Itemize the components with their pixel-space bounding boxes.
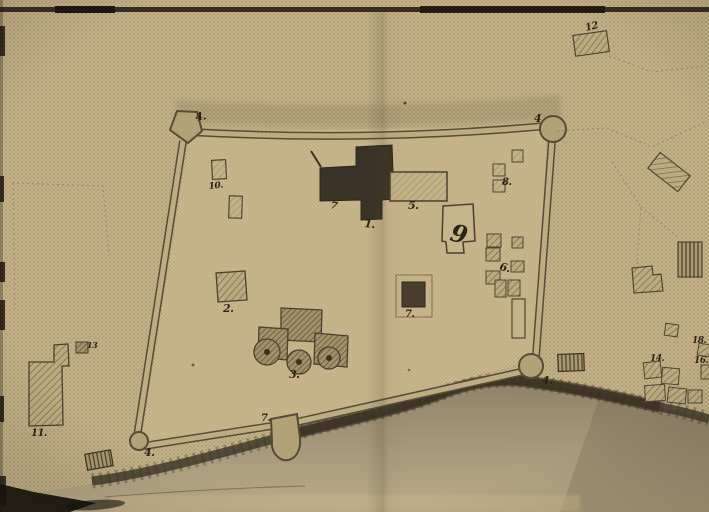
building-6-unit xyxy=(486,248,500,261)
building-long-narrow xyxy=(512,299,525,338)
left-edge-strip xyxy=(0,0,3,512)
village-house xyxy=(661,367,679,384)
village-house xyxy=(701,365,709,379)
village-house xyxy=(664,323,679,337)
church-tower-middle-core xyxy=(296,359,302,365)
left-edge-mark xyxy=(0,176,4,202)
left-edge-mark xyxy=(0,26,5,56)
top-rule-blob-right xyxy=(420,6,605,13)
left-edge-mark xyxy=(0,300,5,330)
building-10-a xyxy=(212,160,227,180)
building-11 xyxy=(29,344,69,426)
scanned-map-page: 4.44.4.10.2.3.71.5.98.6.7.7.1211.1314.18… xyxy=(0,0,709,512)
vertical-crease xyxy=(366,12,404,512)
map-label-bastion-bottom-left: 4. xyxy=(144,446,155,459)
church-tower-left-core xyxy=(264,349,270,355)
map-label-building-18: 18. xyxy=(692,336,707,346)
map-label-building-1: 1. xyxy=(364,217,376,231)
building-7-body xyxy=(402,282,425,307)
boundary-left-side xyxy=(13,183,15,309)
ink-speck xyxy=(404,102,407,105)
building-outwork-southwest xyxy=(85,450,113,470)
map-label-building-8: 8. xyxy=(502,177,511,188)
building-right-diagonal xyxy=(648,152,690,191)
building-6-unit xyxy=(495,280,506,297)
map-label-building-16: 16. xyxy=(694,356,709,366)
church-tower-right-core xyxy=(326,355,332,361)
left-edge-mark xyxy=(0,262,5,282)
building-2 xyxy=(216,271,247,302)
map-label-bastion-top-right: 4 xyxy=(534,112,541,125)
boundary-top-right xyxy=(609,56,704,72)
building-right-lshape xyxy=(632,266,663,293)
boundary-right-branch xyxy=(641,207,679,238)
ink-speck xyxy=(408,369,411,372)
map-label-building-10: 10. xyxy=(208,181,223,192)
map-label-building-7: 7. xyxy=(405,309,414,320)
left-edge-mark xyxy=(0,396,4,422)
building-6-unit xyxy=(487,234,501,247)
map-label-building-14: 14. xyxy=(650,354,665,364)
building-15-ruin xyxy=(558,354,585,372)
map-label-bastion-bottom-right: 4. xyxy=(542,374,553,387)
map-label-building-13: 13 xyxy=(87,340,98,350)
building-6-unit xyxy=(512,237,523,248)
building-10-b xyxy=(229,196,243,218)
boundary-right-upper xyxy=(557,121,707,147)
shore-light-strip xyxy=(110,495,580,512)
bastion-bottom-right xyxy=(519,354,543,378)
map-label-building-5: 5. xyxy=(408,199,419,212)
building-12 xyxy=(573,31,610,57)
map-label-building-2: 2. xyxy=(222,302,234,315)
village-house xyxy=(688,390,702,403)
gate-tower xyxy=(271,414,300,460)
building-right-double xyxy=(678,242,702,277)
map-label-gate-tower: 7. xyxy=(261,413,270,424)
top-rule-blob-left xyxy=(55,6,115,13)
building-6-unit xyxy=(511,261,524,272)
building-6-unit xyxy=(508,280,520,296)
building-8-unit xyxy=(512,150,523,162)
boundary-right-mid xyxy=(612,162,641,262)
fortress-plan-svg: 4.44.4.10.2.3.71.5.98.6.7.7.1211.1314.18… xyxy=(0,0,709,512)
ink-speck xyxy=(192,364,195,367)
village-house xyxy=(667,387,686,404)
map-label-building-3: 3. xyxy=(289,368,300,381)
boundary-left-top xyxy=(12,183,109,255)
building-8-unit xyxy=(493,164,505,176)
map-label-building-11: 11. xyxy=(31,428,47,439)
village-house xyxy=(644,384,665,401)
bastion-top-right xyxy=(540,116,566,142)
